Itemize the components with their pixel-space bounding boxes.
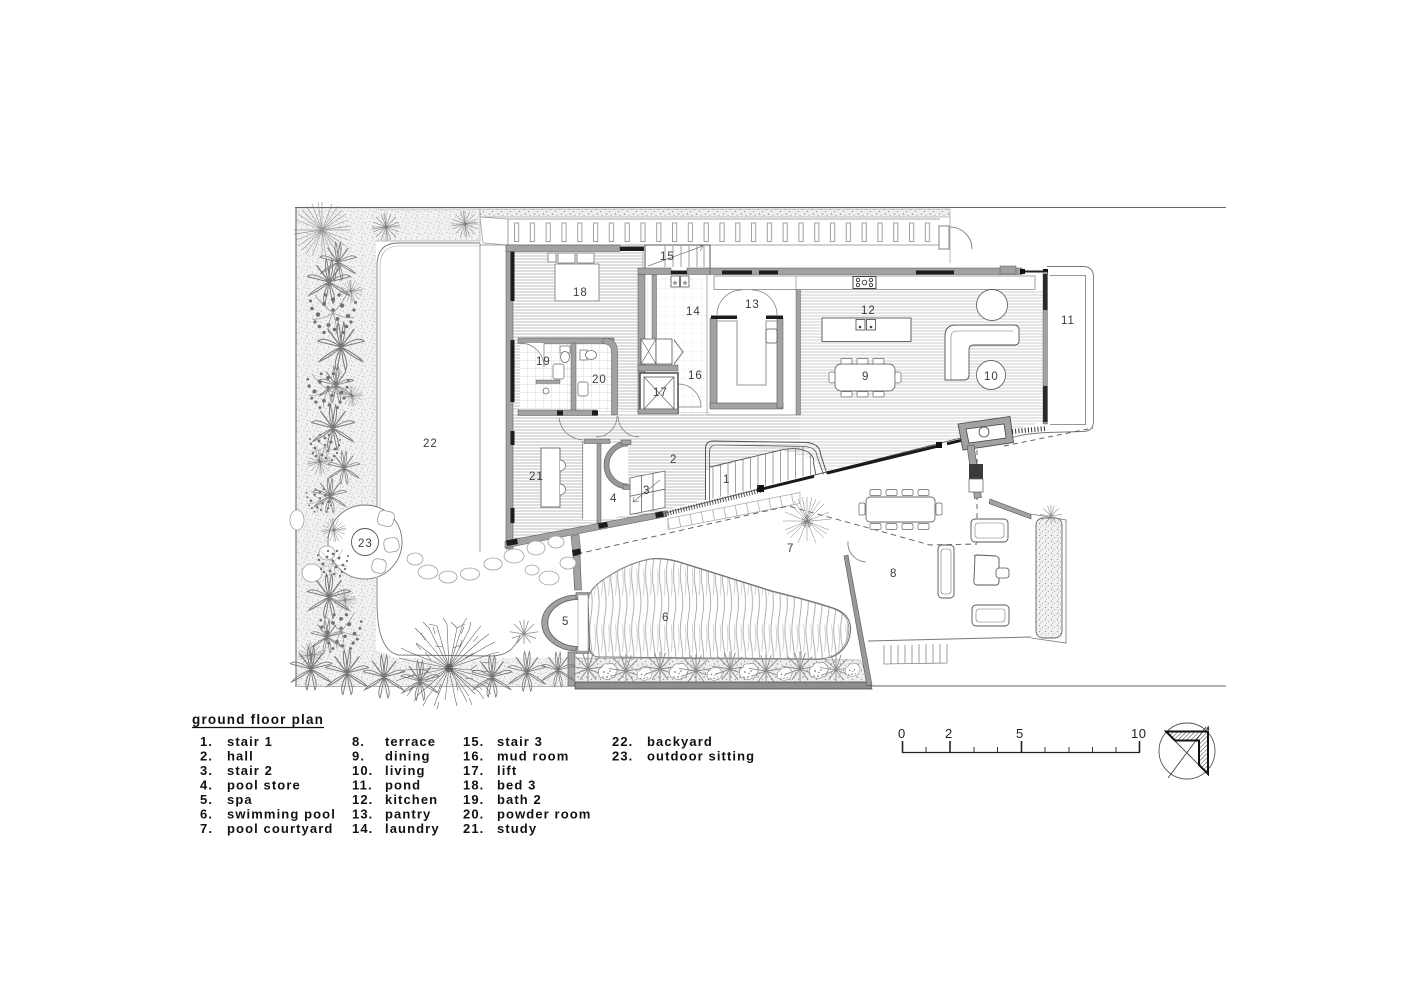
svg-text:12: 12 (861, 305, 876, 317)
svg-text:21: 21 (529, 471, 544, 483)
svg-text:20.: 20. (463, 807, 484, 822)
svg-text:19: 19 (536, 356, 551, 368)
svg-text:6: 6 (662, 612, 669, 624)
svg-text:9.: 9. (352, 749, 365, 764)
svg-text:14: 14 (686, 306, 701, 318)
svg-text:13.: 13. (352, 807, 373, 822)
svg-text:mud room: mud room (497, 749, 569, 764)
svg-text:13: 13 (745, 299, 760, 311)
svg-text:12.: 12. (352, 792, 373, 807)
svg-text:15: 15 (660, 251, 675, 263)
svg-text:kitchen: kitchen (385, 792, 438, 807)
svg-text:dining: dining (385, 749, 431, 764)
svg-text:pantry: pantry (385, 807, 431, 822)
svg-text:1: 1 (723, 474, 730, 486)
svg-text:17.: 17. (463, 763, 484, 778)
svg-text:16.: 16. (463, 749, 484, 764)
svg-text:3.: 3. (200, 763, 213, 778)
svg-text:stair 3: stair 3 (497, 734, 543, 749)
svg-text:15.: 15. (463, 734, 484, 749)
svg-text:22: 22 (423, 438, 438, 450)
svg-text:6.: 6. (200, 807, 213, 822)
svg-text:23.: 23. (612, 749, 633, 764)
svg-text:10.: 10. (352, 763, 373, 778)
svg-text:2.: 2. (200, 749, 213, 764)
svg-text:22.: 22. (612, 734, 633, 749)
svg-text:pond: pond (385, 778, 421, 793)
svg-text:5: 5 (1016, 726, 1024, 741)
svg-text:19.: 19. (463, 792, 484, 807)
svg-text:18: 18 (573, 287, 588, 299)
svg-text:2: 2 (670, 454, 677, 466)
svg-text:pool store: pool store (227, 778, 301, 793)
svg-text:1.: 1. (200, 734, 213, 749)
svg-text:21.: 21. (463, 821, 484, 836)
svg-text:3: 3 (643, 485, 650, 497)
svg-text:stair 2: stair 2 (227, 763, 273, 778)
svg-text:bath 2: bath 2 (497, 792, 542, 807)
svg-text:20: 20 (592, 374, 607, 386)
svg-text:powder room: powder room (497, 807, 591, 822)
svg-text:2: 2 (945, 726, 953, 741)
svg-text:pool courtyard: pool courtyard (227, 821, 333, 836)
svg-text:ground floor plan: ground floor plan (192, 712, 324, 727)
svg-text:hall: hall (227, 749, 254, 764)
svg-text:7.: 7. (200, 821, 213, 836)
svg-text:4: 4 (610, 493, 617, 505)
svg-text:11.: 11. (352, 778, 373, 793)
svg-text:terrace: terrace (385, 734, 436, 749)
svg-text:11: 11 (1061, 315, 1075, 327)
svg-text:living: living (385, 763, 426, 778)
svg-text:study: study (497, 821, 537, 836)
svg-text:5: 5 (562, 616, 569, 628)
svg-text:9: 9 (862, 371, 869, 383)
svg-text:18.: 18. (463, 778, 484, 793)
svg-text:stair 1: stair 1 (227, 734, 273, 749)
svg-text:10: 10 (984, 371, 999, 383)
svg-text:8: 8 (890, 568, 897, 580)
svg-text:8.: 8. (352, 734, 365, 749)
svg-text:laundry: laundry (385, 821, 440, 836)
svg-text:0: 0 (898, 726, 906, 741)
svg-text:bed 3: bed 3 (497, 778, 536, 793)
svg-text:5.: 5. (200, 792, 213, 807)
svg-text:7: 7 (787, 543, 794, 555)
svg-text:23: 23 (358, 538, 373, 550)
svg-text:10: 10 (1131, 726, 1146, 741)
svg-text:backyard: backyard (647, 734, 713, 749)
svg-text:14.: 14. (352, 821, 373, 836)
svg-text:outdoor sitting: outdoor sitting (647, 749, 755, 764)
svg-text:spa: spa (227, 792, 253, 807)
svg-text:17: 17 (653, 387, 668, 399)
svg-text:lift: lift (497, 763, 517, 778)
svg-text:swimming pool: swimming pool (227, 807, 336, 822)
svg-text:4.: 4. (200, 778, 213, 793)
svg-text:16: 16 (688, 370, 703, 382)
